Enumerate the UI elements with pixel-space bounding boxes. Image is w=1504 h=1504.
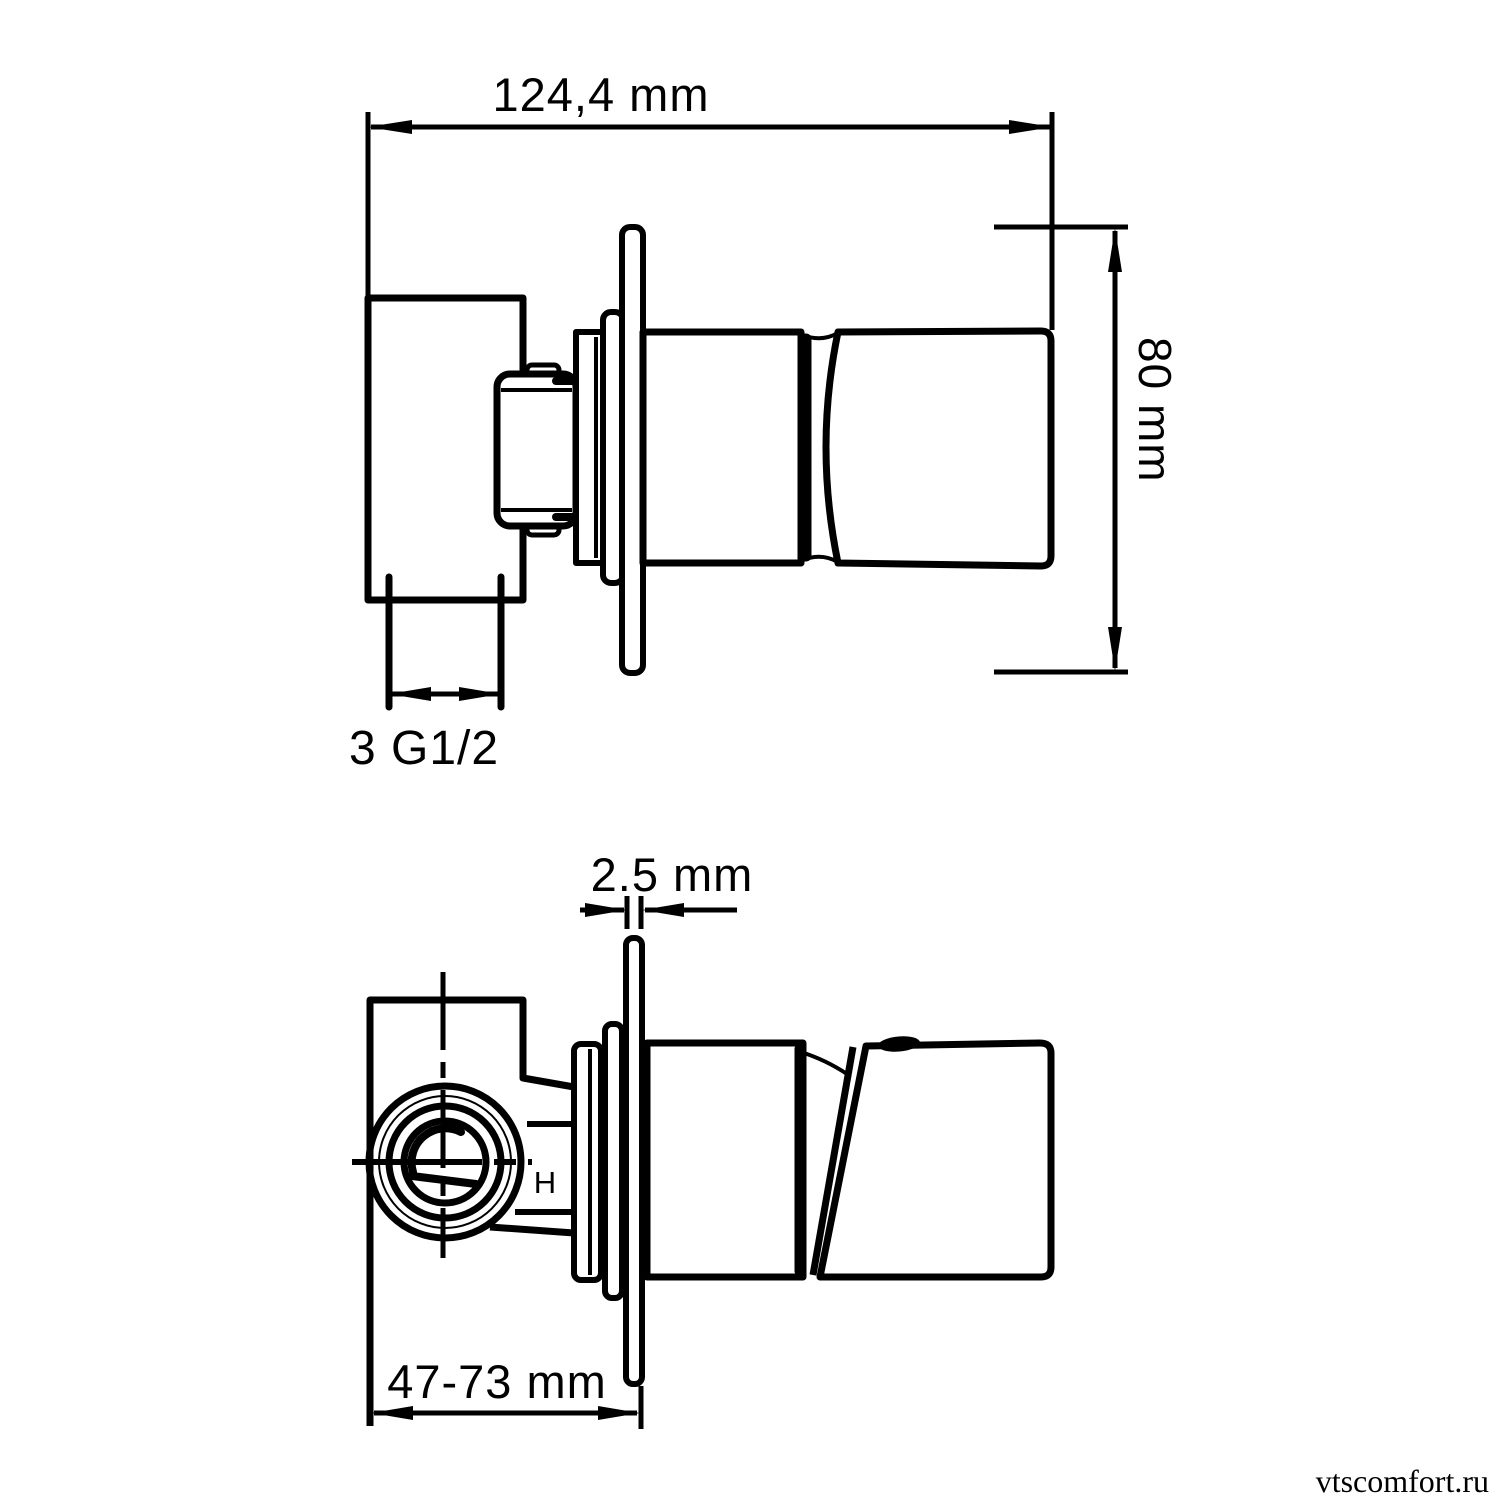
drawing-canvas: 124,4 mm 3 G1/2: [0, 0, 1504, 1504]
dimension-plate-thickness-label: 2.5 mm: [591, 848, 754, 901]
dimension-overall-width: 124,4 mm: [368, 68, 1053, 330]
port-slot-edge: [412, 1176, 476, 1184]
h-marker: H: [534, 1165, 556, 1200]
arrowhead-left: [371, 1406, 413, 1420]
trim-cylinder: [647, 1043, 803, 1277]
arrowhead-up: [1108, 228, 1122, 272]
dimension-thread-label: 3 G1/2: [349, 722, 499, 775]
handle-side-view: [801, 331, 1051, 566]
side-view: 124,4 mm 3 G1/2: [349, 68, 1181, 775]
wall-plate-outline: [626, 938, 642, 1429]
arrowhead-right: [459, 687, 501, 701]
cartridge-connector: [497, 365, 576, 535]
arrowhead-right: [1009, 120, 1053, 134]
sleeve-flange: [574, 1024, 622, 1298]
trim-cylinder: [643, 332, 801, 563]
arrowhead-right: [585, 903, 627, 917]
watermark-text: vtscomfort.ru: [1316, 1463, 1489, 1499]
sleeve-flange: [576, 312, 623, 583]
arrowhead-right: [598, 1406, 640, 1420]
dimension-overall-width-label: 124,4 mm: [493, 68, 710, 121]
arrowhead-left: [389, 687, 431, 701]
dimension-plate-height-label: 80 mm: [1129, 337, 1181, 483]
arrowhead-left: [642, 903, 684, 917]
dimension-thread-connection: 3 G1/2: [349, 687, 501, 775]
dimension-plate-thickness: 2.5 mm: [580, 848, 753, 929]
arrowhead-left: [368, 120, 412, 134]
handle-top-view: [800, 1035, 1051, 1277]
arrowhead-down: [1108, 627, 1122, 671]
dimension-installation-depth: 47-73 mm: [371, 1355, 640, 1420]
dimension-installation-depth-label: 47-73 mm: [387, 1355, 607, 1408]
top-view: 2.5 mm: [352, 848, 1051, 1429]
technical-drawing: 124,4 mm 3 G1/2: [0, 0, 1504, 1504]
